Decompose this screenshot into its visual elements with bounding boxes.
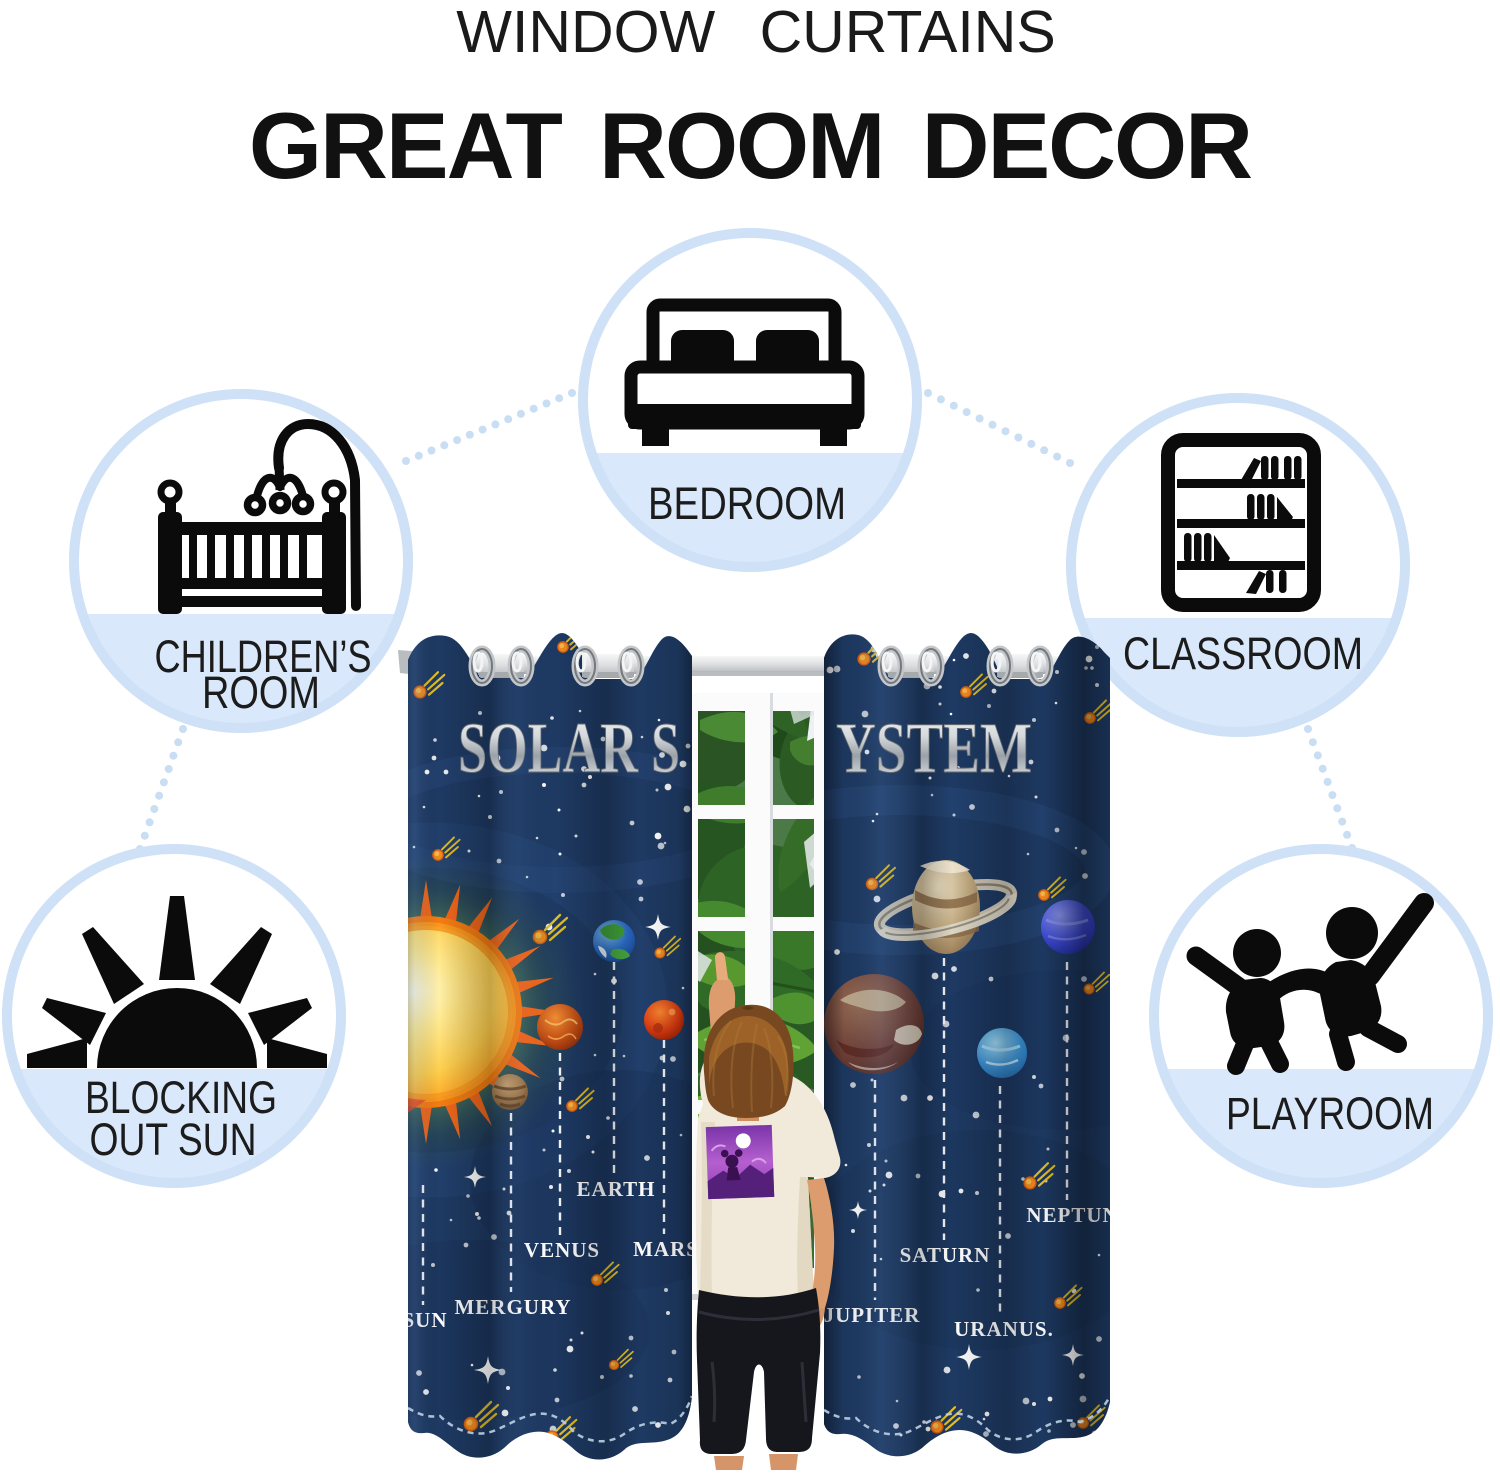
svg-text:OUT SUN: OUT SUN bbox=[90, 1114, 257, 1165]
svg-text:YSTEM: YSTEM bbox=[836, 708, 1032, 788]
svg-text:ROOM: ROOM bbox=[202, 667, 320, 718]
svg-text:SOLAR S: SOLAR S bbox=[458, 708, 680, 788]
svg-text:BEDROOM: BEDROOM bbox=[648, 478, 846, 529]
svg-text:CLASSROOM: CLASSROOM bbox=[1123, 628, 1363, 679]
svg-text:PLAYROOM: PLAYROOM bbox=[1226, 1088, 1434, 1139]
svg-text:GREAT ROOM DECOR: GREAT ROOM DECOR bbox=[249, 93, 1251, 198]
svg-text:WINDOW CURTAINS: WINDOW CURTAINS bbox=[456, 0, 1055, 65]
